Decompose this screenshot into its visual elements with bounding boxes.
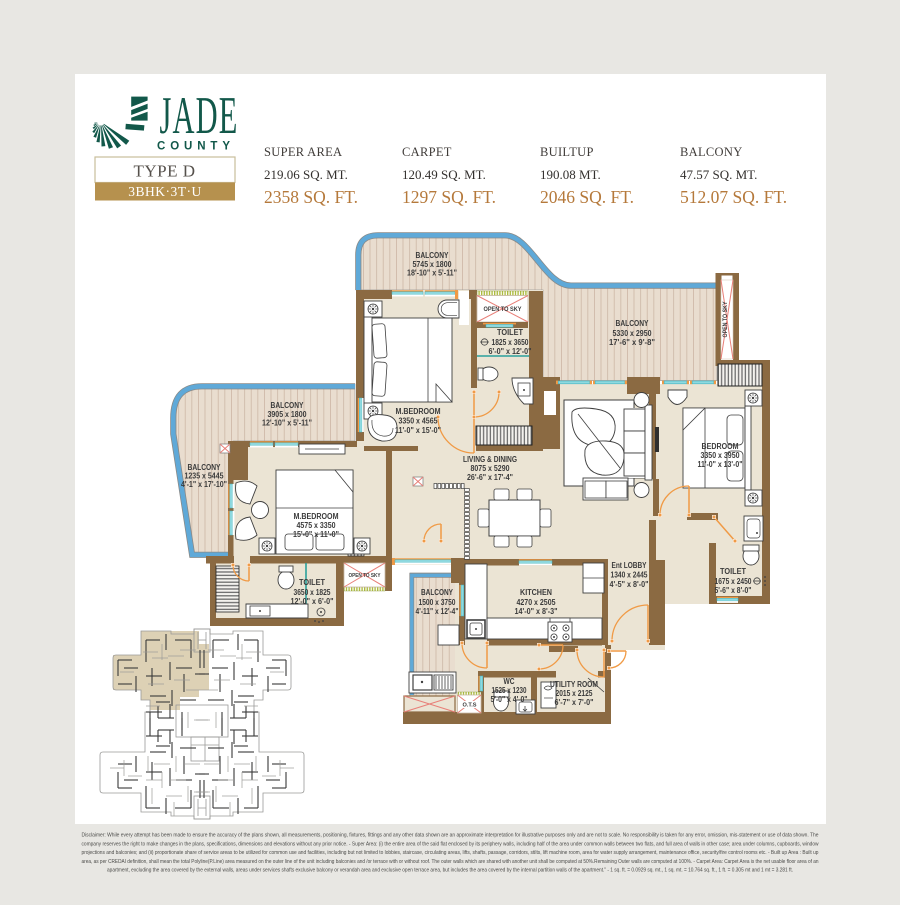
svg-text:1340 x 2445: 1340 x 2445 [611, 570, 648, 579]
svg-text:BEDROOM: BEDROOM [702, 442, 739, 451]
svg-text:2046 SQ. FT.: 2046 SQ. FT. [540, 187, 634, 207]
svg-text:BALCONY: BALCONY [421, 588, 454, 597]
svg-text:OPEN TO SKY: OPEN TO SKY [722, 301, 729, 338]
svg-text:6'-0" x 12'-0": 6'-0" x 12'-0" [489, 347, 532, 356]
svg-text:OPEN TO SKY: OPEN TO SKY [484, 306, 523, 313]
svg-text:projections and balconies; and: projections and balconies; and (ii) prop… [82, 850, 819, 856]
svg-text:1525 x 1230: 1525 x 1230 [492, 686, 527, 695]
svg-text:BALCONY: BALCONY [616, 319, 650, 328]
svg-text:M.BEDROOM: M.BEDROOM [396, 407, 441, 416]
svg-text:11'-0" x 15'-0": 11'-0" x 15'-0" [395, 426, 441, 435]
svg-text:COUNTY: COUNTY [157, 141, 234, 153]
svg-text:12'-0" x 6'-0": 12'-0" x 6'-0" [291, 597, 334, 606]
svg-text:4270 x 2505: 4270 x 2505 [517, 598, 556, 607]
svg-text:47.57 SQ. MT.: 47.57 SQ. MT. [680, 167, 757, 182]
svg-text:190.08 MT.: 190.08 MT. [540, 167, 601, 182]
svg-text:2015 x 2125: 2015 x 2125 [556, 689, 593, 698]
svg-text:4'-1" x 17'-10": 4'-1" x 17'-10" [181, 480, 227, 489]
svg-text:apartment, excluding the area: apartment, excluding the area covered by… [107, 868, 793, 874]
svg-text:BALCONY: BALCONY [416, 251, 450, 260]
svg-text:17'-6" x 9'-8": 17'-6" x 9'-8" [609, 338, 655, 347]
svg-text:8075 x 5290: 8075 x 5290 [471, 464, 510, 473]
svg-text:12'-10" x 5'-11": 12'-10" x 5'-11" [262, 418, 312, 427]
svg-text:6'-7" x 7'-0": 6'-7" x 7'-0" [555, 698, 594, 707]
svg-text:TOILET: TOILET [720, 567, 746, 576]
svg-text:UTILITY ROOM: UTILITY ROOM [550, 680, 598, 689]
svg-text:3BHK·3T·U: 3BHK·3T·U [128, 184, 202, 199]
svg-text:BALCONY: BALCONY [680, 145, 743, 159]
svg-text:15'-0" x 11'-0": 15'-0" x 11'-0" [293, 530, 339, 539]
svg-text:LIVING & DINING: LIVING & DINING [463, 455, 517, 464]
svg-text:3350 x 4565: 3350 x 4565 [399, 416, 438, 425]
svg-text:M.BEDROOM: M.BEDROOM [294, 512, 339, 521]
svg-text:TOILET: TOILET [299, 578, 325, 587]
svg-text:1297 SQ. FT.: 1297 SQ. FT. [402, 187, 496, 207]
svg-text:Disclaimer: While every attemp: Disclaimer: While every attempt has been… [82, 833, 819, 839]
svg-text:18'-10" x 5'-11": 18'-10" x 5'-11" [407, 268, 457, 277]
svg-text:3650 x 1825: 3650 x 1825 [294, 588, 331, 597]
svg-text:BUILTUP: BUILTUP [540, 145, 594, 159]
svg-text:BALCONY: BALCONY [271, 401, 305, 410]
svg-text:4575 x 3350: 4575 x 3350 [297, 521, 336, 530]
svg-text:3350 x 3950: 3350 x 3950 [701, 451, 740, 460]
svg-text:1500 x 3750: 1500 x 3750 [419, 598, 456, 607]
svg-text:120.49 SQ. MT.: 120.49 SQ. MT. [402, 167, 486, 182]
svg-text:CARPET: CARPET [402, 145, 452, 159]
svg-text:KITCHEN: KITCHEN [520, 588, 552, 597]
svg-text:5'-0" x 4'-0": 5'-0" x 4'-0" [491, 695, 528, 704]
svg-text:SUPER AREA: SUPER AREA [264, 145, 342, 159]
svg-text:area, as per CREDAI definition: area, as per CREDAI definition, shall me… [82, 859, 819, 865]
svg-text:219.06 SQ. MT.: 219.06 SQ. MT. [264, 167, 348, 182]
svg-text:OPEN TO SKY: OPEN TO SKY [349, 573, 381, 579]
svg-text:Ent LOBBY: Ent LOBBY [612, 561, 648, 570]
svg-text:512.07 SQ. FT.: 512.07 SQ. FT. [680, 187, 787, 207]
svg-text:JADE: JADE [160, 88, 239, 145]
svg-text:5'-6" x 8'-0": 5'-6" x 8'-0" [715, 586, 752, 595]
svg-text:14'-0" x 8'-3": 14'-0" x 8'-3" [515, 607, 558, 616]
svg-text:26'-6" x 17'-4": 26'-6" x 17'-4" [467, 473, 513, 482]
svg-text:TYPE D: TYPE D [133, 162, 195, 181]
svg-text:1825 x 3650: 1825 x 3650 [492, 338, 529, 347]
svg-text:O.T.S: O.T.S [463, 703, 478, 709]
svg-text:company reserves the right to: company reserves the right to make chang… [82, 841, 819, 847]
svg-text:2358 SQ. FT.: 2358 SQ. FT. [264, 187, 358, 207]
svg-text:4'-11" x 12'-4": 4'-11" x 12'-4" [416, 607, 459, 616]
svg-text:11'-0" x 13'-0": 11'-0" x 13'-0" [698, 460, 743, 469]
svg-text:5330 x 2950: 5330 x 2950 [613, 329, 652, 338]
svg-text:4'-5" x 8'-0": 4'-5" x 8'-0" [610, 580, 649, 589]
svg-text:TOILET: TOILET [497, 328, 523, 337]
svg-text:1675 x 2450: 1675 x 2450 [715, 577, 752, 586]
svg-text:WC: WC [504, 677, 515, 686]
